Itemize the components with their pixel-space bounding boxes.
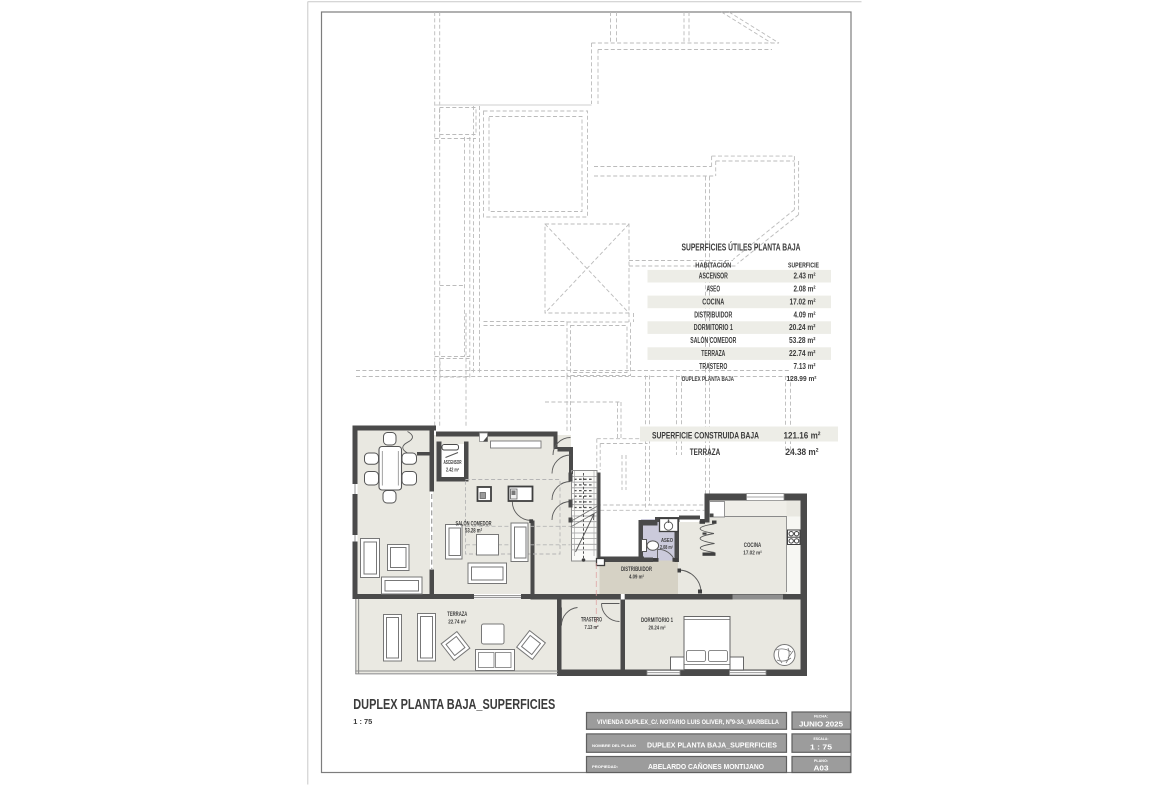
svg-text:24.38 m²: 24.38 m² (786, 447, 819, 457)
svg-text:7.13 m²: 7.13 m² (585, 624, 599, 631)
svg-text:SUPERFICIE CONSTRUIDA BAJA: SUPERFICIE CONSTRUIDA BAJA (652, 431, 759, 441)
svg-text:17.02 m²: 17.02 m² (743, 550, 762, 557)
svg-text:ASEO: ASEO (707, 284, 721, 293)
svg-text:TRASTERO: TRASTERO (581, 617, 602, 624)
svg-text:VIVIENDA DUPLEX_C/. NOTARIO LU: VIVIENDA DUPLEX_C/. NOTARIO LUIS OLIVER,… (597, 720, 780, 726)
svg-text:COCINA: COCINA (702, 297, 724, 306)
svg-text:SALÓN COMEDOR: SALÓN COMEDOR (690, 336, 736, 345)
svg-text:DUPLEX PLANTA BAJA_SUPERFICIES: DUPLEX PLANTA BAJA_SUPERFICIES (353, 696, 555, 713)
svg-text:1 : 75: 1 : 75 (810, 743, 832, 752)
svg-text:20.24 m²: 20.24 m² (789, 323, 816, 332)
svg-text:DISTRIBUIDOR: DISTRIBUIDOR (621, 566, 652, 573)
svg-text:ASCENSOR: ASCENSOR (444, 460, 462, 466)
svg-text:DUPLEX PLANTA BAJA: DUPLEX PLANTA BAJA (682, 376, 734, 383)
svg-text:ABELARDO CAÑONES MONTIJANO: ABELARDO CAÑONES MONTIJANO (648, 762, 764, 771)
svg-text:NOMBRE DEL PLANO: NOMBRE DEL PLANO (592, 743, 636, 748)
svg-text:COCINA: COCINA (744, 542, 762, 549)
svg-text:22.74 m²: 22.74 m² (789, 349, 816, 358)
svg-text:7.13 m²: 7.13 m² (794, 362, 816, 371)
svg-text:ESCALA:: ESCALA: (814, 737, 829, 741)
svg-text:53.28 m²: 53.28 m² (465, 528, 482, 535)
svg-text:ASEO: ASEO (661, 538, 673, 544)
svg-text:TERRAZA: TERRAZA (701, 349, 725, 358)
svg-text:DUPLEX PLANTA BAJA_SUPERFICIES: DUPLEX PLANTA BAJA_SUPERFICIES (647, 741, 777, 750)
svg-text:17.02 m²: 17.02 m² (790, 297, 816, 306)
svg-text:2.08 m²: 2.08 m² (660, 545, 673, 551)
svg-text:DORMITORIO 1: DORMITORIO 1 (694, 323, 733, 332)
svg-text:4.09 m²: 4.09 m² (794, 310, 816, 319)
svg-text:2.43 m²: 2.43 m² (794, 272, 816, 281)
svg-text:A03: A03 (814, 764, 829, 773)
svg-text:2.42 m²: 2.42 m² (446, 468, 459, 474)
svg-text:PROPIEDAD:: PROPIEDAD: (592, 764, 618, 769)
svg-text:2.08 m²: 2.08 m² (794, 284, 816, 293)
svg-text:JUNIO 2025: JUNIO 2025 (799, 720, 843, 729)
svg-text:DORMITORIO 1: DORMITORIO 1 (641, 617, 673, 624)
svg-text:HABITACIÓN: HABITACIÓN (695, 261, 731, 270)
svg-text:20.24 m²: 20.24 m² (649, 625, 666, 632)
svg-text:TRASTERO: TRASTERO (699, 362, 727, 371)
svg-text:PLANO:: PLANO: (814, 759, 828, 763)
svg-text:22.74 m²: 22.74 m² (448, 619, 466, 626)
svg-text:SUPERFICIE: SUPERFICIE (788, 261, 819, 270)
svg-text:FECHA:: FECHA: (814, 715, 828, 719)
svg-text:TERRAZA: TERRAZA (690, 447, 721, 457)
svg-text:1 : 75: 1 : 75 (353, 717, 373, 726)
svg-text:ASCENSOR: ASCENSOR (699, 272, 728, 281)
svg-text:121.16 m²: 121.16 m² (784, 431, 821, 441)
svg-text:128.99 m²: 128.99 m² (787, 376, 818, 383)
svg-text:4.09 m²: 4.09 m² (629, 574, 644, 581)
svg-text:SALÓN COMEDOR: SALÓN COMEDOR (456, 519, 492, 528)
svg-text:SUPERFICIES ÚTILES PLANTA BAJA: SUPERFICIES ÚTILES PLANTA BAJA (682, 242, 801, 254)
svg-text:DISTRIBUIDOR: DISTRIBUIDOR (694, 310, 732, 319)
svg-text:TERRAZA: TERRAZA (447, 611, 467, 618)
svg-text:53.28 m²: 53.28 m² (789, 336, 816, 345)
